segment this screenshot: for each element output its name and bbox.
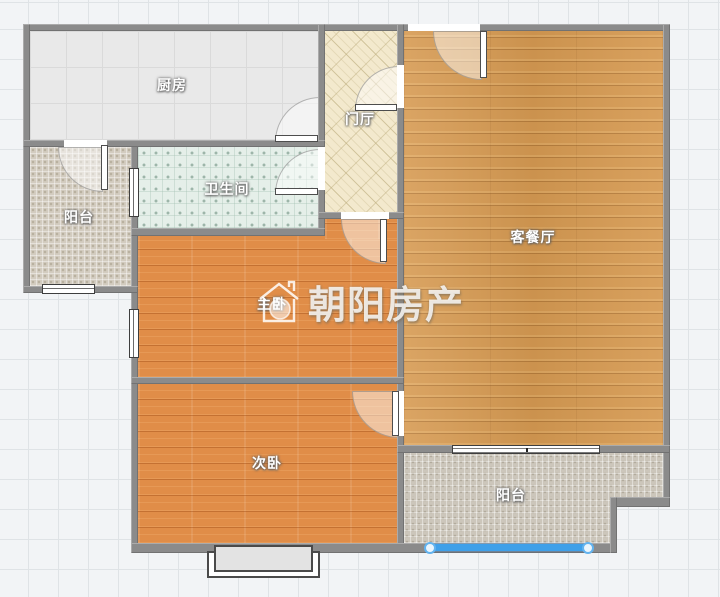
wall (131, 228, 325, 236)
master-bedroom-door-leaf[interactable] (380, 219, 387, 262)
wall (131, 377, 404, 384)
kitchen-door-leaf[interactable] (275, 135, 318, 142)
wall (23, 24, 670, 31)
balcony-left-door-leaf[interactable] (101, 145, 108, 190)
entry-door-leaf[interactable] (480, 31, 487, 78)
room-label-bathroom: 卫生间 (205, 179, 250, 199)
room-label-kitchen: 厨房 (157, 75, 187, 95)
bay-window-second-bedroom[interactable] (214, 545, 313, 572)
room-label-living-dining: 客餐厅 (511, 227, 556, 247)
room-label-second-bedroom: 次卧 (252, 453, 282, 473)
room-label-balcony-left: 阳台 (64, 207, 94, 227)
window-balcony-left-bottom[interactable] (42, 284, 95, 294)
wall (610, 497, 670, 507)
master-bedroom-door-opening (341, 212, 389, 219)
bathroom-door-opening (318, 147, 325, 190)
room-label-master-bedroom: 主卧 (257, 294, 287, 314)
selection-handle-right[interactable] (582, 542, 594, 554)
room-balcony-bottom-upper[interactable] (404, 453, 663, 498)
wall (610, 497, 617, 553)
window-master-bedroom[interactable] (129, 309, 139, 358)
wall (23, 24, 30, 293)
second-bedroom-door-leaf[interactable] (392, 391, 399, 436)
selection-handle-left[interactable] (424, 542, 436, 554)
hall-living-door-opening (397, 65, 404, 108)
wall (318, 24, 325, 236)
sliding-door-living-balcony[interactable] (452, 445, 600, 454)
room-label-balcony-bottom: 阳台 (496, 485, 526, 505)
selected-window-highlight[interactable] (430, 544, 588, 551)
window-balcony-left-side[interactable] (129, 168, 139, 217)
room-label-entry-hall: 门厅 (345, 109, 375, 129)
entry-door-opening (408, 24, 480, 31)
floor-plan-canvas: 厨房 门厅 客餐厅 卫生间 阳台 主卧 次卧 阳台 朝阳房产 (0, 0, 720, 597)
bathroom-door-leaf[interactable] (275, 188, 318, 195)
wall (663, 24, 670, 507)
